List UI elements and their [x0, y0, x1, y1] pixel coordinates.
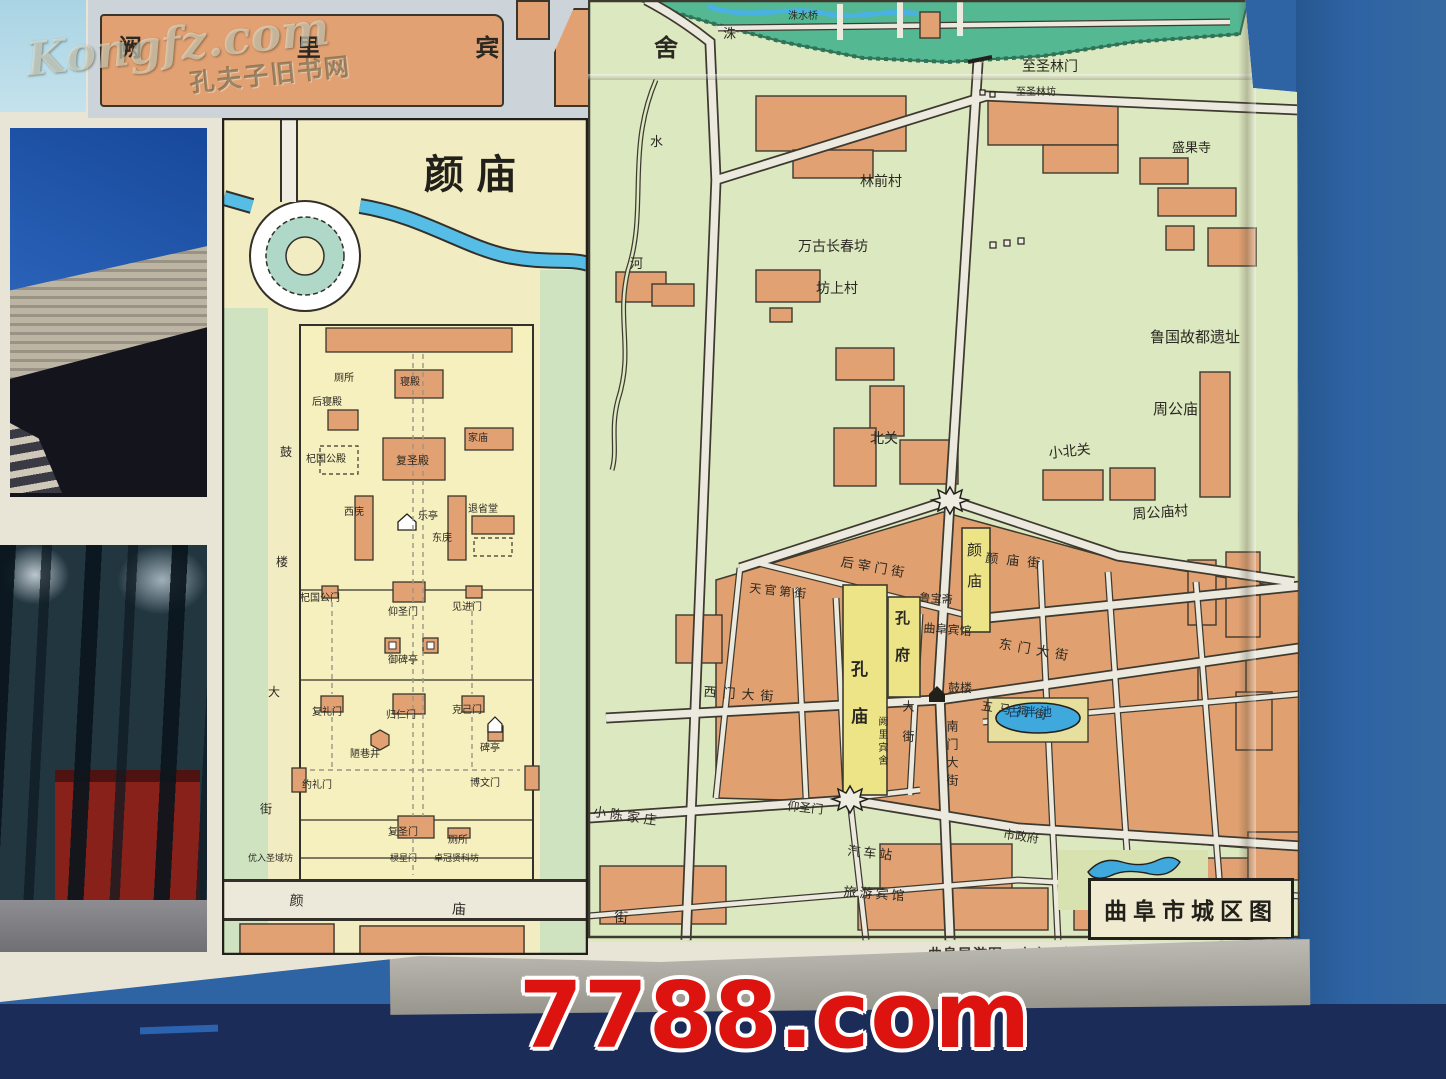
yan-temple-block: [962, 528, 990, 632]
kong-mansion-block: [888, 597, 920, 697]
green-strip: [222, 308, 268, 955]
city-map-title: 曲阜市城区图: [1104, 892, 1278, 926]
green-strip: [540, 270, 588, 955]
yanmiao-inset-title: 颜庙: [424, 142, 528, 200]
photo-tree-trunks: [0, 545, 207, 903]
gupan-pond: [996, 703, 1080, 733]
backdrop-navy-bottom: [0, 1004, 1446, 1079]
paper-fold: [1238, 0, 1256, 945]
photo-cropped-top-left: [0, 0, 86, 112]
qufu-city-map: .rb{fill:none;stroke:#3e3a30;stroke-widt…: [588, 0, 1300, 942]
photo-ground: [0, 900, 207, 952]
city-map-title-box: 曲阜市城区图: [1088, 878, 1294, 940]
photo-cypress-trees: [0, 545, 207, 952]
kong-temple-block: [843, 585, 887, 795]
photo-of-map-listing: { "watermarks": { "bookstore": "Kongfz.c…: [0, 0, 1446, 1079]
folded-paper-map: 阙 里 宾 舍: [0, 0, 1302, 1004]
photo-city-wall: [10, 128, 207, 497]
paper-crease: [588, 74, 1298, 80]
backdrop-blue: [1296, 0, 1446, 1010]
yanmiao-inset-map: [222, 118, 588, 955]
hotel-inset-label: 阙 里 宾 舍: [118, 36, 724, 60]
